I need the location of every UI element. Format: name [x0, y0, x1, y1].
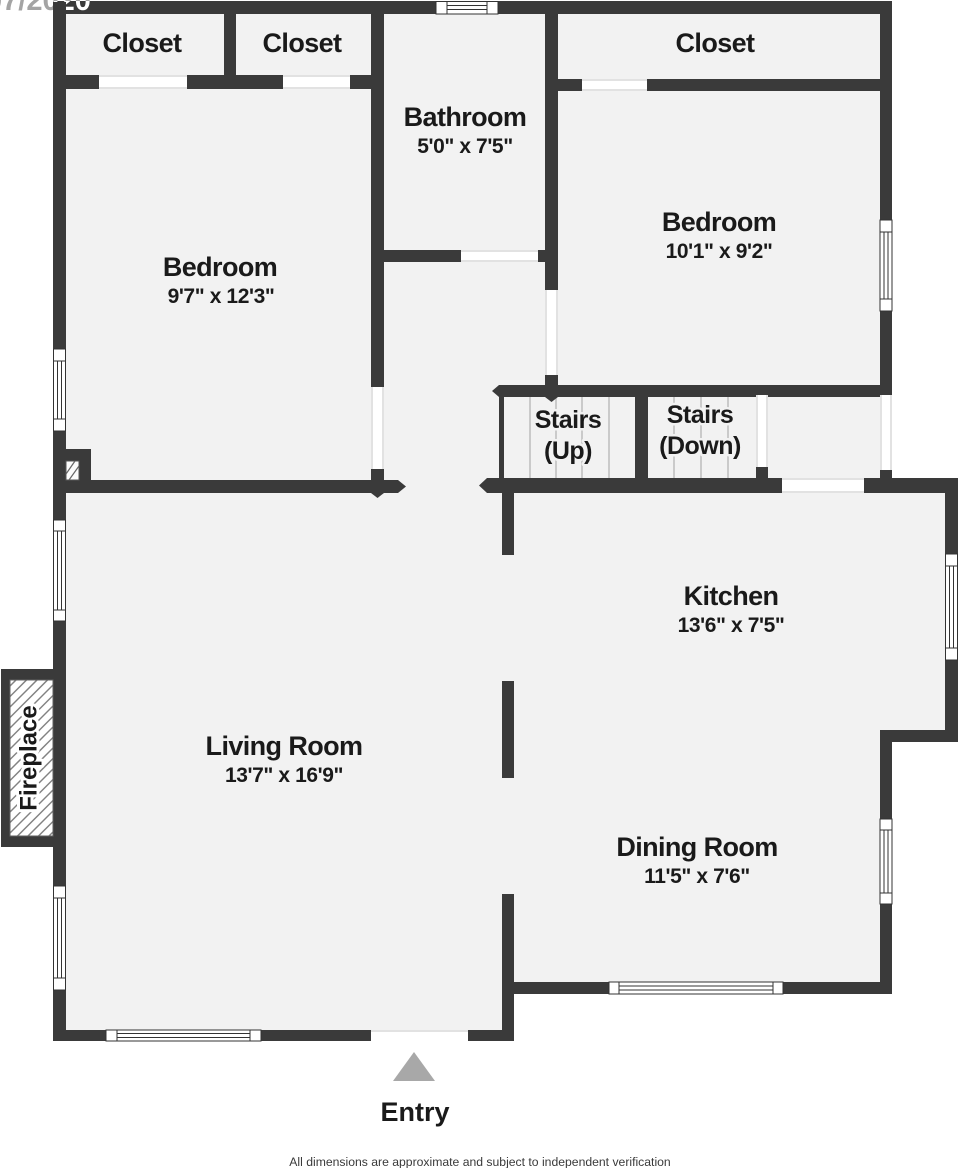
svg-text:Bathroom: Bathroom — [404, 102, 527, 132]
svg-text:11'5" x 7'6": 11'5" x 7'6" — [644, 865, 750, 888]
svg-text:Dining Room: Dining Room — [616, 832, 777, 862]
svg-text:All dimensions are approximate: All dimensions are approximate and subje… — [289, 1155, 670, 1168]
svg-text:13'6" x 7'5": 13'6" x 7'5" — [678, 614, 785, 637]
svg-text:Closet: Closet — [676, 28, 756, 58]
svg-text:13'7" x 16'9": 13'7" x 16'9" — [225, 764, 343, 787]
svg-text:Bedroom: Bedroom — [662, 207, 776, 237]
svg-text:10'1" x 9'2": 10'1" x 9'2" — [666, 240, 773, 263]
svg-text:Stairs: Stairs — [667, 401, 733, 429]
svg-text:Kitchen: Kitchen — [684, 581, 779, 611]
svg-text:Entry: Entry — [380, 1097, 449, 1127]
svg-text:5'0" x 7'5": 5'0" x 7'5" — [417, 135, 513, 158]
svg-text:(Down): (Down) — [659, 432, 741, 460]
svg-text:Stairs: Stairs — [535, 406, 601, 434]
svg-text:(Up): (Up) — [544, 437, 592, 465]
svg-text:Fireplace: Fireplace — [15, 705, 42, 810]
svg-text:Living Room: Living Room — [206, 731, 363, 761]
svg-text:9'7" x 12'3": 9'7" x 12'3" — [168, 285, 275, 308]
svg-text:Closet: Closet — [103, 28, 183, 58]
svg-text:Closet: Closet — [263, 28, 343, 58]
svg-text:Bedroom: Bedroom — [163, 252, 277, 282]
